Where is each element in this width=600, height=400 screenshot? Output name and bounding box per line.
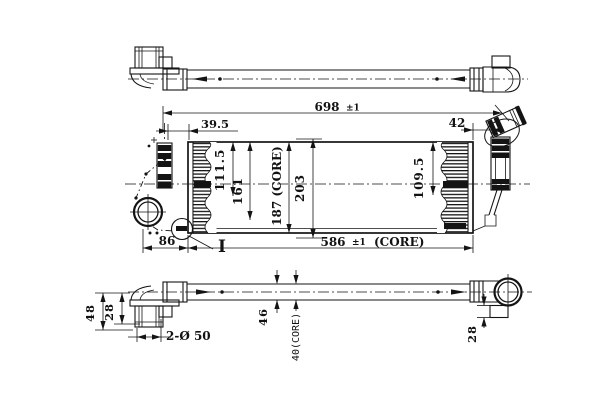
top-right-stub [492,56,510,68]
dim-overall-width-tol: ±1 [346,104,360,114]
top-view [128,47,528,92]
intercooler-three-view-drawing: I 698 ±1 3 [0,0,600,400]
dim-core-height-label: 187 (CORE) [270,146,284,226]
bottom-left-elbow-inner [140,290,154,300]
dim-core-width: 586 ±1 (CORE) [188,235,473,253]
dim-28-right-label: 28 [465,325,479,343]
top-right-hose-connector [470,68,483,91]
bottom-right-hose-connector [470,281,483,302]
bottom-view [128,274,532,327]
bottom-right-stub [490,306,508,318]
dim-right-end-label: 42 [449,116,466,130]
dim-port-spec: 2-Ø 50 [128,319,211,343]
top-left-step [159,57,172,68]
dim-core-width-tol: ±1 [352,238,366,248]
bottom-left-flange [130,300,179,306]
top-left-elbow-outer [131,74,151,88]
dim-core-height: 187 (CORE) [270,142,292,233]
dim-46-label: 46 [256,308,270,326]
dim-height-161: 161 [231,142,253,220]
dim-109-5-label: 109.5 [412,157,426,200]
dim-depth-46: 46 [256,270,280,326]
dim-depth-28-right: 28 [465,294,490,343]
dim-left-end-label: 39.5 [201,117,229,131]
flow-arrow-left-icon [196,289,211,294]
bottom-left-elbow-outer [131,286,151,300]
right-support-strut [489,190,502,215]
dim-203-label: 203 [293,174,307,202]
dim-port-spec-label: 2-Ø 50 [166,329,211,343]
dim-height-109-5: 109.5 [412,142,436,199]
dim-28-left-label: 28 [102,303,116,321]
corner-bracket [176,226,187,231]
right-lower-bracket [444,223,466,229]
dim-111-5-label: 111.5 [213,149,227,192]
dim-left-end-width: 39.5 [156,117,238,140]
drawing-canvas: I 698 ±1 3 [0,0,600,400]
dim-core-width-label: 586 [320,235,345,249]
dim-48-label: 48 [83,304,97,322]
top-right-end-cap [483,67,520,92]
flow-arrow-right-icon [451,289,466,294]
dim-depth-28-left: 28 [102,293,140,324]
flow-arrow-left-icon [192,76,207,81]
bottom-left-step [159,306,172,317]
right-support-foot [473,215,496,231]
dim-overall-width-label: 698 [314,100,339,114]
dim-core-width-suffix: (CORE) [374,235,424,249]
dim-161-label: 161 [231,177,245,205]
detail-marker-label: I [218,237,226,257]
dim-core-depth-label: 40(CORE) [291,313,302,361]
flow-arrow-right-icon [450,76,465,81]
dim-overall-height: 203 [293,139,322,238]
dim-86-label: 86 [159,234,176,248]
